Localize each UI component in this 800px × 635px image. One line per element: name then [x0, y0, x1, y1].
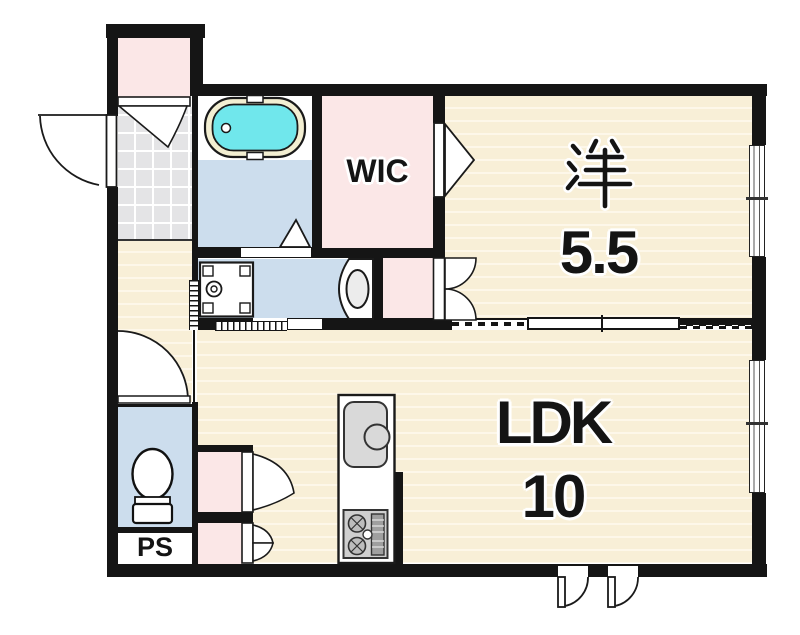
kitchen-counter-icon [339, 395, 395, 563]
ldk-name-label: LDK [428, 388, 678, 457]
bathroom-door-icon [280, 220, 310, 247]
gas-stove-icon [344, 510, 388, 558]
kitchen-sink-icon [344, 402, 390, 467]
floor-plan: 洋 5.5 LDK 10 WIC PS [0, 0, 800, 635]
washing-machine-icon [200, 263, 253, 317]
pipe-space-label: PS [118, 532, 192, 563]
toilet-icon [133, 449, 173, 523]
wic-door-icon [434, 123, 474, 197]
entrance-door-icon [38, 115, 117, 187]
wic-label: WIC [322, 153, 433, 190]
toilet-door-icon [118, 331, 190, 403]
ldk-size-label: 10 [428, 462, 678, 531]
western-room-size-label: 5.5 [445, 218, 752, 287]
ldk-balcony-doors-icon [558, 577, 638, 607]
ldk-closet-door-icon [242, 452, 294, 563]
porch-door-icon [118, 97, 190, 147]
bathtub-icon [205, 96, 305, 160]
washbasin-icon [339, 259, 373, 319]
western-room-kanji-label [568, 141, 630, 206]
